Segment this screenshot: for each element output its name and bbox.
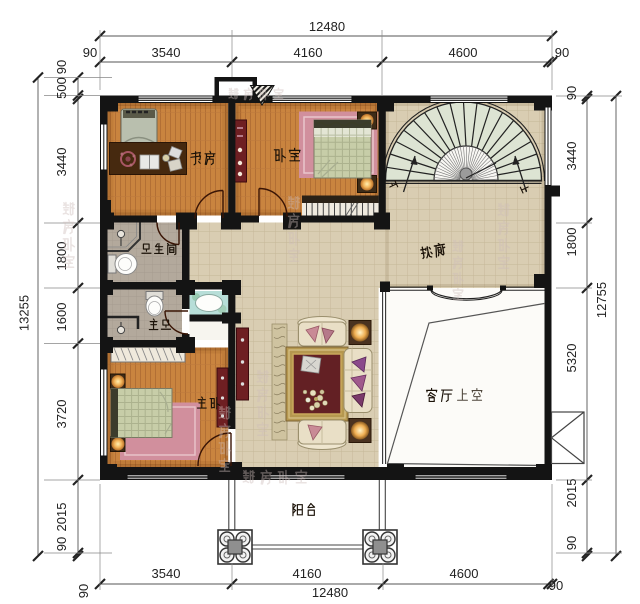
- svg-text:5320: 5320: [564, 344, 579, 373]
- svg-text:2015: 2015: [54, 503, 69, 532]
- svg-text:3720: 3720: [54, 400, 69, 429]
- svg-text:90: 90: [76, 584, 91, 598]
- svg-text:90: 90: [549, 578, 563, 593]
- svg-text:1800: 1800: [564, 228, 579, 257]
- svg-text:4600: 4600: [450, 566, 479, 581]
- svg-text:1800: 1800: [54, 242, 69, 271]
- svg-text:90: 90: [54, 60, 69, 74]
- svg-text:12480: 12480: [312, 585, 348, 599]
- svg-text:3440: 3440: [54, 148, 69, 177]
- svg-text:4600: 4600: [449, 45, 478, 60]
- svg-text:3540: 3540: [152, 566, 181, 581]
- svg-text:90: 90: [555, 45, 569, 60]
- svg-text:13255: 13255: [17, 295, 32, 331]
- svg-text:12755: 12755: [594, 282, 609, 318]
- svg-text:1600: 1600: [54, 303, 69, 332]
- svg-text:3440: 3440: [564, 142, 579, 171]
- svg-text:90: 90: [83, 45, 97, 60]
- svg-text:4160: 4160: [294, 45, 323, 60]
- svg-text:4160: 4160: [293, 566, 322, 581]
- svg-text:90: 90: [564, 86, 579, 100]
- svg-text:90: 90: [54, 537, 69, 551]
- svg-text:2015: 2015: [564, 479, 579, 508]
- svg-text:12480: 12480: [309, 19, 345, 34]
- svg-text:500: 500: [54, 77, 69, 99]
- svg-text:3540: 3540: [152, 45, 181, 60]
- svg-text:90: 90: [564, 536, 579, 550]
